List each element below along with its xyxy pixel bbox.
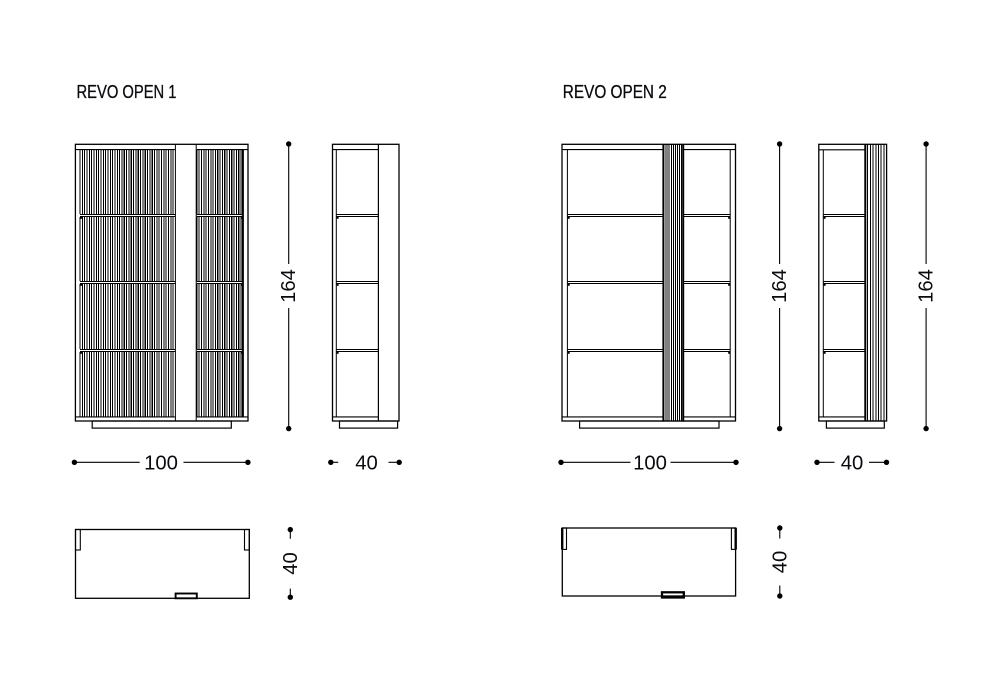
svg-text:100: 100 [144, 453, 178, 475]
svg-text:40: 40 [280, 552, 302, 575]
svg-text:40: 40 [841, 453, 864, 475]
svg-text:164: 164 [769, 269, 791, 303]
svg-text:REVO OPEN 1: REVO OPEN 1 [77, 82, 177, 102]
svg-text:100: 100 [633, 453, 667, 475]
svg-text:164: 164 [916, 269, 938, 303]
svg-text:164: 164 [278, 269, 300, 303]
svg-text:REVO OPEN 2: REVO OPEN 2 [563, 82, 667, 102]
svg-text:40: 40 [355, 453, 378, 475]
svg-text:40: 40 [769, 551, 791, 574]
